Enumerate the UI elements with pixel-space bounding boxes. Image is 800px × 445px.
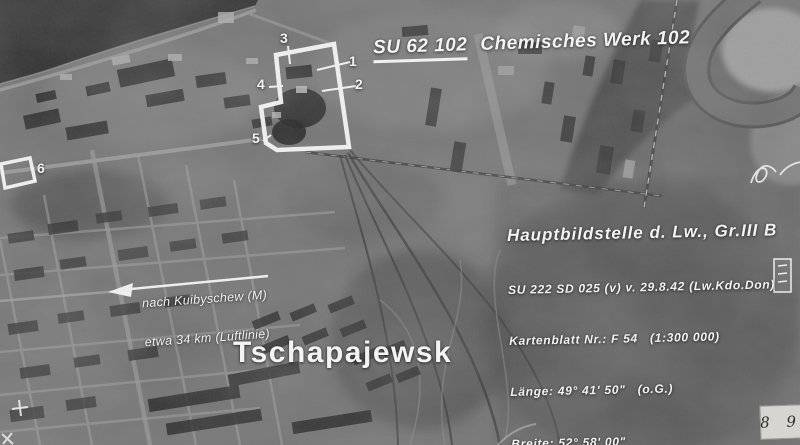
registration-cross-icon	[12, 400, 28, 416]
aerial-reconnaissance-photo: SU 62 102Chemisches Werk 102 1 2 3 4 5 6…	[0, 0, 800, 445]
marker-5: 5	[252, 130, 260, 146]
info-block: Hauptbildstelle d. Lw., Gr.III B SU 222 …	[506, 184, 800, 445]
info-sortie: SU 222 SD 025 (v) v. 29.8.42 (Lw.Kdo.Don…	[508, 278, 800, 297]
river-northwest	[0, 0, 258, 90]
marker-6: 6	[37, 160, 45, 176]
target-outline-box-6	[1, 158, 35, 188]
marker-3: 3	[280, 30, 288, 46]
handwritten-corner-label: 8 9	[759, 404, 800, 440]
marker-2: 2	[355, 76, 363, 92]
marker-4: 4	[257, 76, 265, 92]
info-map-sheet: Kartenblatt Nr.: F 54 (1:300 000)	[509, 329, 800, 348]
target-name: Chemisches Werk 102	[480, 27, 690, 55]
city-label: Tschapajewsk	[233, 336, 452, 370]
target-title: SU 62 102Chemisches Werk 102	[349, 5, 691, 82]
target-outline-polygon	[261, 44, 349, 150]
target-id: SU 62 102	[373, 34, 468, 63]
light-roofs-northwest	[60, 12, 258, 80]
marker-leader-lines	[263, 46, 356, 141]
direction-arrow-line1: nach Kuibyschew (M)	[126, 288, 283, 312]
plant-structures	[272, 65, 326, 145]
info-header: Hauptbildstelle d. Lw., Gr.III B	[507, 220, 800, 246]
info-latitude: Breite: 52° 58' 00"	[511, 431, 800, 445]
corner-mark-icon	[2, 433, 13, 444]
buildings-northwest	[23, 58, 273, 140]
marker-1: 1	[349, 53, 357, 69]
info-longitude: Länge: 49° 41' 50" (o.G.)	[510, 380, 800, 399]
handwritten-scribble-icon	[751, 162, 800, 183]
